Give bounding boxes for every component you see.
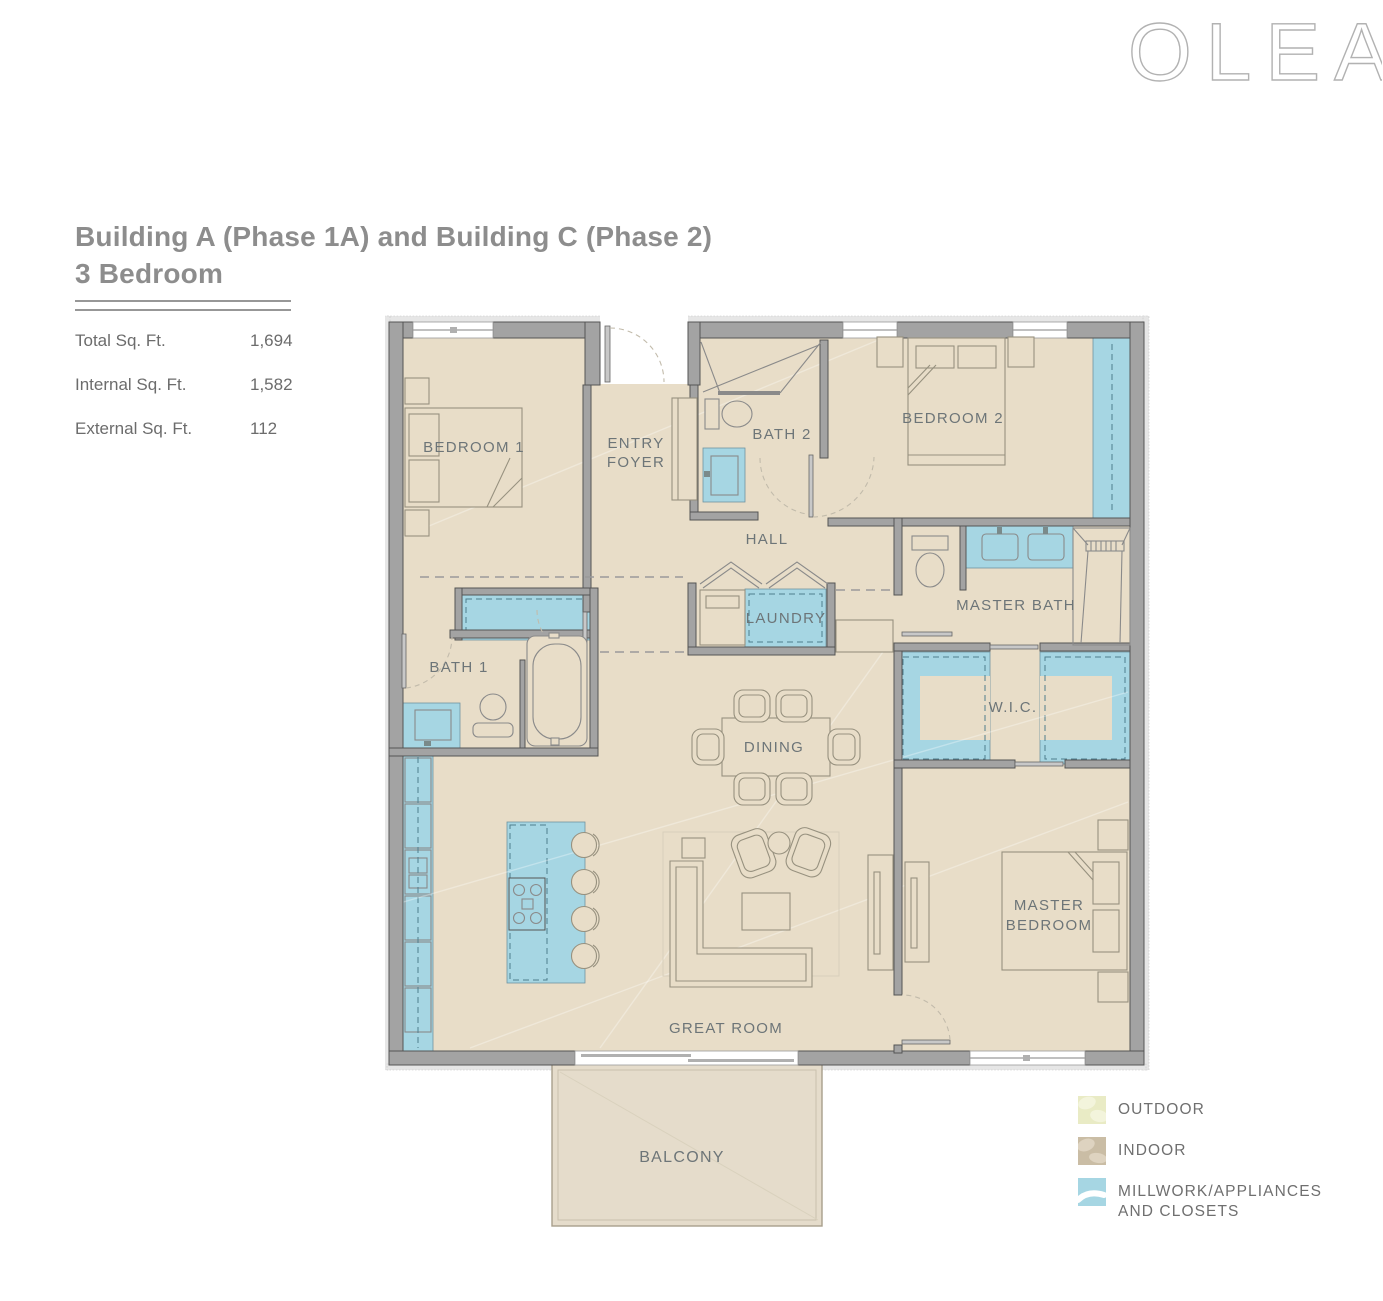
page: { "brand": { "logo": "OLEA" }, "header":… — [0, 0, 1383, 1301]
stat-value: 112 — [250, 419, 340, 439]
stat-value: 1,582 — [250, 375, 340, 395]
page-title-line2: 3 Bedroom — [75, 255, 712, 292]
stat-label: External Sq. Ft. — [75, 419, 250, 439]
room-label-bath1: BATH 1 — [429, 659, 488, 676]
entry-door — [585, 314, 700, 385]
room-label-bedroom2: BEDROOM 2 — [902, 410, 1004, 427]
stat-label: Total Sq. Ft. — [75, 331, 250, 351]
room-label-master-bath: MASTER BATH — [956, 597, 1076, 614]
room-label-bath2: BATH 2 — [752, 426, 811, 443]
room-label-laundry: LAUNDRY — [746, 610, 827, 627]
legend-label-millwork: MILLWORK/APPLIANCES AND CLOSETS — [1118, 1178, 1322, 1222]
room-label-hall: HALL — [746, 531, 789, 548]
room-label-entry-line1: ENTRY — [607, 435, 664, 452]
room-label-balcony: BALCONY — [639, 1149, 725, 1166]
room-label-great-room: GREAT ROOM — [669, 1020, 783, 1037]
legend-item-indoor: INDOOR — [1078, 1137, 1322, 1165]
legend-label-millwork-line1: MILLWORK/APPLIANCES — [1118, 1183, 1322, 1200]
floorplan-svg: BEDROOM 1 ENTRY FOYER BATH 2 BEDROOM 2 H… — [385, 308, 1163, 1243]
balcony-area — [552, 1062, 822, 1226]
title-divider — [75, 300, 291, 311]
stat-label: Internal Sq. Ft. — [75, 375, 250, 395]
room-label-wic: W.I.C. — [989, 699, 1038, 716]
legend-item-millwork: MILLWORK/APPLIANCES AND CLOSETS — [1078, 1178, 1322, 1222]
brand-logo-text: OLEA — [1128, 7, 1382, 98]
brand-logo-svg: OLEA — [1122, 2, 1382, 102]
room-label-master-line1: MASTER — [1014, 897, 1084, 914]
page-title-line1: Building A (Phase 1A) and Building C (Ph… — [75, 218, 712, 255]
outdoor-swatch-icon — [1078, 1096, 1106, 1124]
stat-value: 1,694 — [250, 331, 340, 351]
legend-label-millwork-line2: AND CLOSETS — [1118, 1203, 1240, 1220]
stat-row-total: Total Sq. Ft. 1,694 — [75, 331, 340, 351]
stat-row-internal: Internal Sq. Ft. 1,582 — [75, 375, 340, 395]
legend-label-outdoor: OUTDOOR — [1118, 1096, 1205, 1120]
sqft-stats: Total Sq. Ft. 1,694 Internal Sq. Ft. 1,5… — [75, 331, 340, 463]
indoor-swatch-icon — [1078, 1137, 1106, 1165]
legend-item-outdoor: OUTDOOR — [1078, 1096, 1322, 1124]
page-title: Building A (Phase 1A) and Building C (Ph… — [75, 218, 712, 292]
brand-logo: OLEA — [1122, 2, 1382, 107]
millwork-swatch-icon — [1078, 1178, 1106, 1206]
stat-row-external: External Sq. Ft. 112 — [75, 419, 340, 439]
room-label-entry-line2: FOYER — [607, 454, 665, 471]
room-label-master-line2: BEDROOM — [1006, 917, 1093, 934]
room-label-dining: DINING — [744, 739, 804, 756]
legend: OUTDOOR INDOOR MILLWORK/APPLIANCES AND C… — [1078, 1096, 1322, 1235]
legend-label-indoor: INDOOR — [1118, 1137, 1187, 1161]
room-label-bedroom1: BEDROOM 1 — [423, 439, 525, 456]
